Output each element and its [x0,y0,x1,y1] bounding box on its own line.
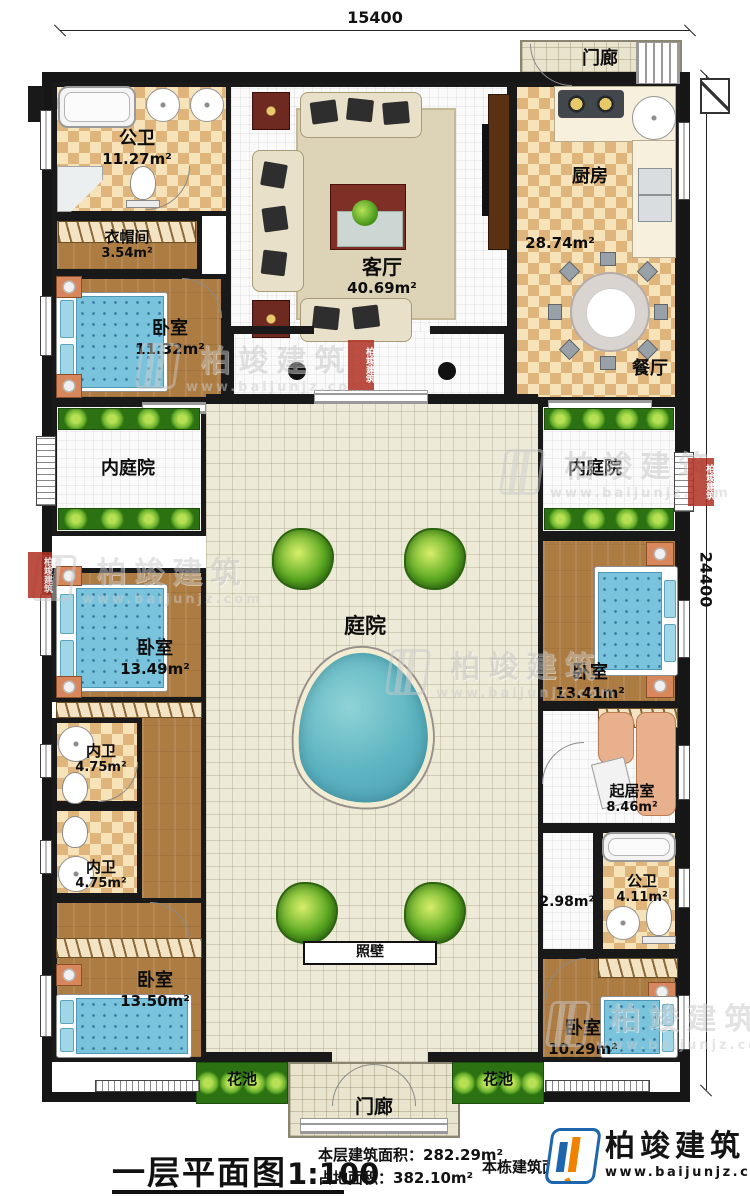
label-kitchen: 厨房 [540,166,640,188]
wall-segment [504,330,512,402]
window [95,1080,200,1092]
toilet [62,816,88,848]
dining-table-top [586,288,636,338]
label-bedroom-mid-right: 卧室 [534,662,646,684]
dimension-right-value: 24400 [697,540,716,620]
porch-bottom-steps [300,1118,448,1134]
brand-logo: 柏竣建筑 www.baijunjz.com [548,1128,750,1184]
brand-name: 柏竣建筑 [605,1132,745,1162]
label-living: 客厅 [320,255,444,279]
title-underline [112,1190,344,1194]
area-bedroom-bottom-right: 10.29m² [524,1040,642,1058]
column-dot [288,362,306,380]
label-public-bath-top: 公卫 [75,128,199,150]
tree [272,528,334,590]
sitting-chaise [598,712,634,764]
label-courtyard: 庭院 [323,614,407,639]
tree [404,528,466,590]
watermark-seal: 柏竣建筑 [28,552,52,598]
label-porch-top: 门廊 [560,48,640,70]
dining-table [570,272,650,352]
bathtub [602,832,676,862]
stove [558,90,624,118]
dimension-line-top [60,30,690,31]
sofa-left [252,150,304,292]
sofa-cushion [312,306,340,331]
hedge [544,408,674,430]
sofa-cushion [352,304,380,329]
nightstand [646,542,674,566]
tree [404,882,466,944]
hedge [544,508,674,530]
bathtub [58,86,136,128]
wall-segment [226,326,314,334]
label-bedroom-bottom-right: 卧室 [524,1018,642,1040]
dining-chair [654,304,668,320]
pillow [60,1000,74,1024]
area-bedroom-top-left: 11.32m² [110,340,230,358]
brand-logo-icon [544,1128,602,1184]
label-inner-bath-upper: 内卫 [60,742,142,760]
label-porch-bottom: 门廊 [332,1096,416,1119]
dining-chair [548,304,562,320]
nightstand [56,276,82,298]
porch-top-steps [636,42,680,84]
wall-segment [428,1052,538,1062]
wall-segment [430,326,512,334]
area-inner-bath-lower: 4.75m² [60,876,142,892]
pillow [664,624,676,662]
sofa-cushion [261,250,288,277]
label-public-bath-right: 公卫 [604,872,680,890]
label-flower-bed-right: 花池 [454,1070,542,1088]
plan-title: 一层平面图 [112,1146,287,1194]
pillow [662,1030,674,1052]
window [40,296,52,356]
area-sitting: 8.46m² [574,800,690,816]
window [40,840,52,874]
toilet [62,772,88,804]
sofa-cushion [346,98,374,123]
label-dining: 餐厅 [608,358,692,380]
hedge [58,508,200,530]
pillow [662,1004,674,1026]
area-bedroom-mid-left: 13.49m² [100,660,210,678]
window [36,436,56,506]
kitchen-round-sink [632,96,676,140]
label-screen-wall: 照壁 [303,944,437,961]
area-hall: 2.98m² [528,894,606,911]
nightstand [56,566,82,586]
area-public-bath-right: 4.11m² [604,890,680,906]
label-bedroom-top-left: 卧室 [110,318,230,340]
side-table [252,92,290,130]
wall-segment [428,394,538,404]
pillow [60,300,74,338]
window [40,744,52,778]
sofa-cushion [261,205,288,232]
sink [146,88,180,122]
area-inner-bath-upper: 4.75m² [60,760,142,776]
window [678,995,690,1050]
pillow [664,580,676,618]
sofa-cushion [310,99,339,124]
nightstand [646,674,674,698]
land-area-label: 占地面积： [318,1169,393,1187]
hedge [58,408,200,430]
wall-segment [206,394,314,404]
area-kitchen: 28.74m² [505,234,615,252]
area-bedroom-bottom-left: 13.50m² [95,992,215,1010]
label-cloakroom: 衣帽间 [62,228,192,246]
tv [482,124,489,216]
label-flower-bed-left: 花池 [198,1070,286,1088]
sofa-bottom [300,298,412,342]
area-cloakroom: 3.54m² [62,246,192,262]
label-sitting: 起居室 [574,782,690,800]
label-inner-courtyard-left: 内庭院 [76,458,180,480]
sink [190,88,224,122]
floor-plan-canvas: 15400 24400 门廊 [0,0,750,1203]
tree [276,882,338,944]
nightstand [56,964,82,986]
window [678,122,690,200]
nightstand [56,374,82,398]
toilet-tank [642,936,676,944]
sofa-cushion [260,161,288,189]
wardrobe-hatch [56,702,202,718]
double-sink [638,168,672,222]
window [40,110,52,170]
window [40,594,52,656]
wardrobe-hatch [598,958,678,978]
label-bedroom-bottom-left: 卧室 [95,970,215,992]
window [40,975,52,1037]
area-summary: 本层建筑面积：282.29m² 占地面积：382.10m² [318,1144,503,1191]
area-public-bath-top: 11.27m² [75,150,199,168]
pillow [60,1028,74,1052]
bed-mattress [598,572,662,670]
wall-segment [206,1052,332,1062]
entry-steps [314,390,428,404]
pillow [60,594,74,634]
room-hall [538,828,598,954]
dining-chair [600,252,616,266]
window [545,1080,650,1092]
land-area-value: 382.10m² [393,1169,473,1187]
sofa-cushion [382,101,410,125]
sink [606,906,640,940]
brand-url: www.baijunjz.com [605,1165,750,1180]
sofa-top [300,92,422,138]
vent-shaft [700,78,730,114]
bathtub-basin [64,92,130,122]
column-dot [438,362,456,380]
label-inner-courtyard-right: 内庭院 [543,458,647,480]
dimension-top-value: 15400 [95,8,655,27]
area-bedroom-mid-right: 13.41m² [534,684,646,702]
tv-cabinet [488,94,510,250]
label-inner-bath-lower: 内卫 [60,858,142,876]
bathtub-basin [608,838,670,856]
window [678,600,690,658]
table-plant [352,200,378,226]
pillow [60,640,74,680]
window [674,452,694,512]
label-bedroom-mid-left: 卧室 [100,638,210,660]
floor-area-label: 本层建筑面积： [318,1146,423,1164]
area-living: 40.69m² [320,279,444,297]
nightstand [56,676,82,698]
